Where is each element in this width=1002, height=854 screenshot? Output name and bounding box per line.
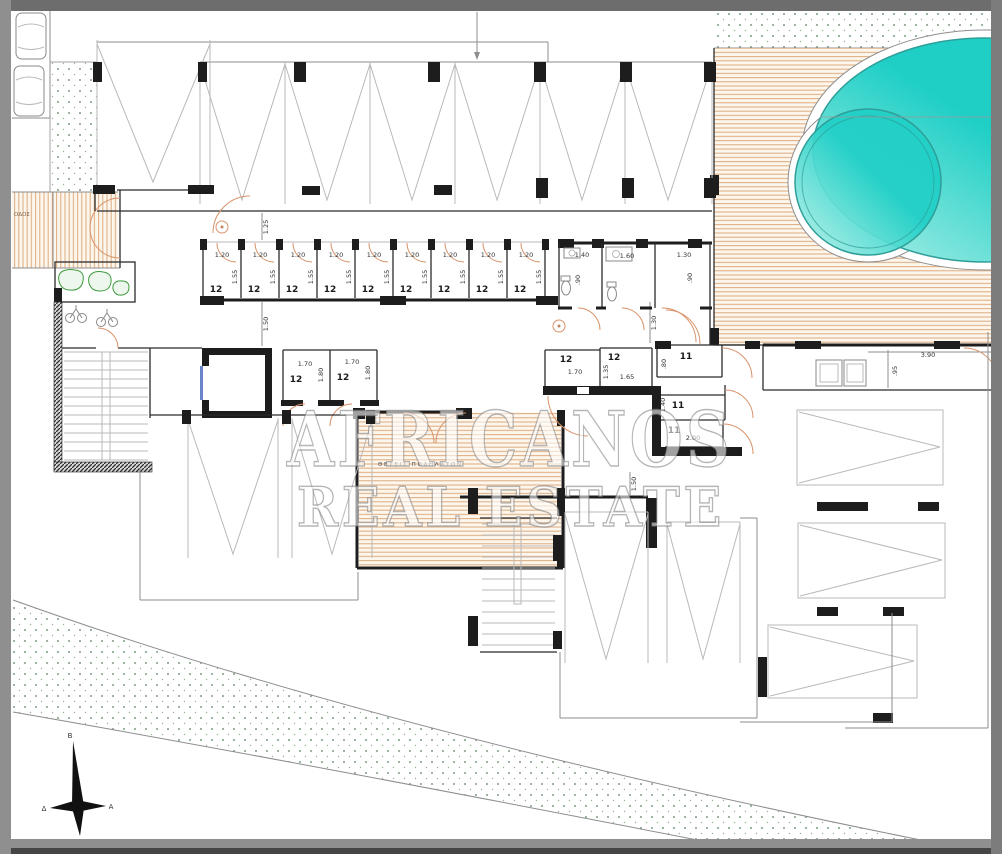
dim-label: 1.55 (421, 270, 429, 284)
dim-label: 1.20 (215, 251, 229, 259)
dim-label: 1.40 (575, 251, 589, 259)
dim-label: 1.55 (459, 270, 467, 284)
dim-label: 1.65 (620, 373, 634, 381)
dim-label: 3.90 (921, 351, 935, 359)
room-number: 12 (438, 285, 451, 295)
room-number: 12 (210, 285, 223, 295)
room-number: 12 (608, 353, 621, 363)
dim-label: 1.55 (345, 270, 353, 284)
dim-label: 1.50 (262, 317, 270, 331)
dim-label: 1.20 (443, 251, 457, 259)
dim-label: 1.55 (497, 270, 505, 284)
dim-label: 1.55 (383, 270, 391, 284)
dim-label: 1.20 (481, 251, 495, 259)
planting-bed (50, 62, 97, 193)
dim-label: 1.35 (602, 365, 610, 379)
dim-label: 1.20 (519, 251, 533, 259)
room-number: 12 (476, 285, 489, 295)
entrance-ramp: ΟΔΟΣ (12, 190, 120, 268)
dim-label: .80 (660, 359, 668, 369)
room-number: 12 (514, 285, 527, 295)
dim-label: 1.55 (535, 270, 543, 284)
room-number: 12 (248, 285, 261, 295)
floor-plan-page: ΟΔΟΣ (0, 0, 1002, 854)
dim-label: 1.20 (291, 251, 305, 259)
dim-label: 1.20 (405, 251, 419, 259)
dim-label: 1.25 (262, 220, 270, 234)
room-number: 12 (362, 285, 375, 295)
dim-label: 1.70 (345, 358, 359, 366)
dim-label: 1.80 (317, 368, 325, 382)
compass-north-label: Β (68, 732, 73, 740)
watermark-line-2: REAL ESTATE (297, 475, 725, 539)
dim-label: .95 (891, 366, 899, 376)
dim-label: 1.20 (329, 251, 343, 259)
dim-label: 1.55 (307, 270, 315, 284)
room-number: 12 (560, 355, 573, 365)
dim-label: 1.20 (253, 251, 267, 259)
street-label: ΟΔΟΣ (14, 212, 30, 218)
room-number: 12 (286, 285, 299, 295)
elevator-door (200, 366, 203, 400)
room-number: 12 (400, 285, 413, 295)
watermark: AFRICANOS REAL ESTATE (286, 395, 733, 539)
car-icon (16, 13, 46, 59)
compass-west-label: Δ (42, 805, 47, 813)
dim-label: 1.55 (269, 270, 277, 284)
watermark-line-1: AFRICANOS (286, 395, 733, 484)
room-number: 12 (324, 285, 337, 295)
room-number: 11 (680, 352, 693, 362)
dim-label: 1.70 (568, 368, 582, 376)
dim-label: .90 (574, 275, 582, 285)
dim-label: .90 (686, 273, 694, 283)
dim-label: 1.30 (650, 316, 658, 330)
car-icon (14, 66, 44, 116)
floor-plan-canvas: ΟΔΟΣ (0, 0, 1002, 854)
dim-label: 1.20 (367, 251, 381, 259)
dim-label: 1.70 (298, 360, 312, 368)
room-number: 12 (337, 373, 350, 383)
jacuzzi-water (795, 109, 941, 255)
room-number: 12 (290, 375, 303, 385)
dim-label: 1.55 (231, 270, 239, 284)
dim-label: 1.60 (620, 252, 634, 260)
dim-label: 1.80 (364, 366, 372, 380)
dim-label: 1.30 (677, 251, 691, 259)
compass-east-label: Α (109, 803, 114, 811)
